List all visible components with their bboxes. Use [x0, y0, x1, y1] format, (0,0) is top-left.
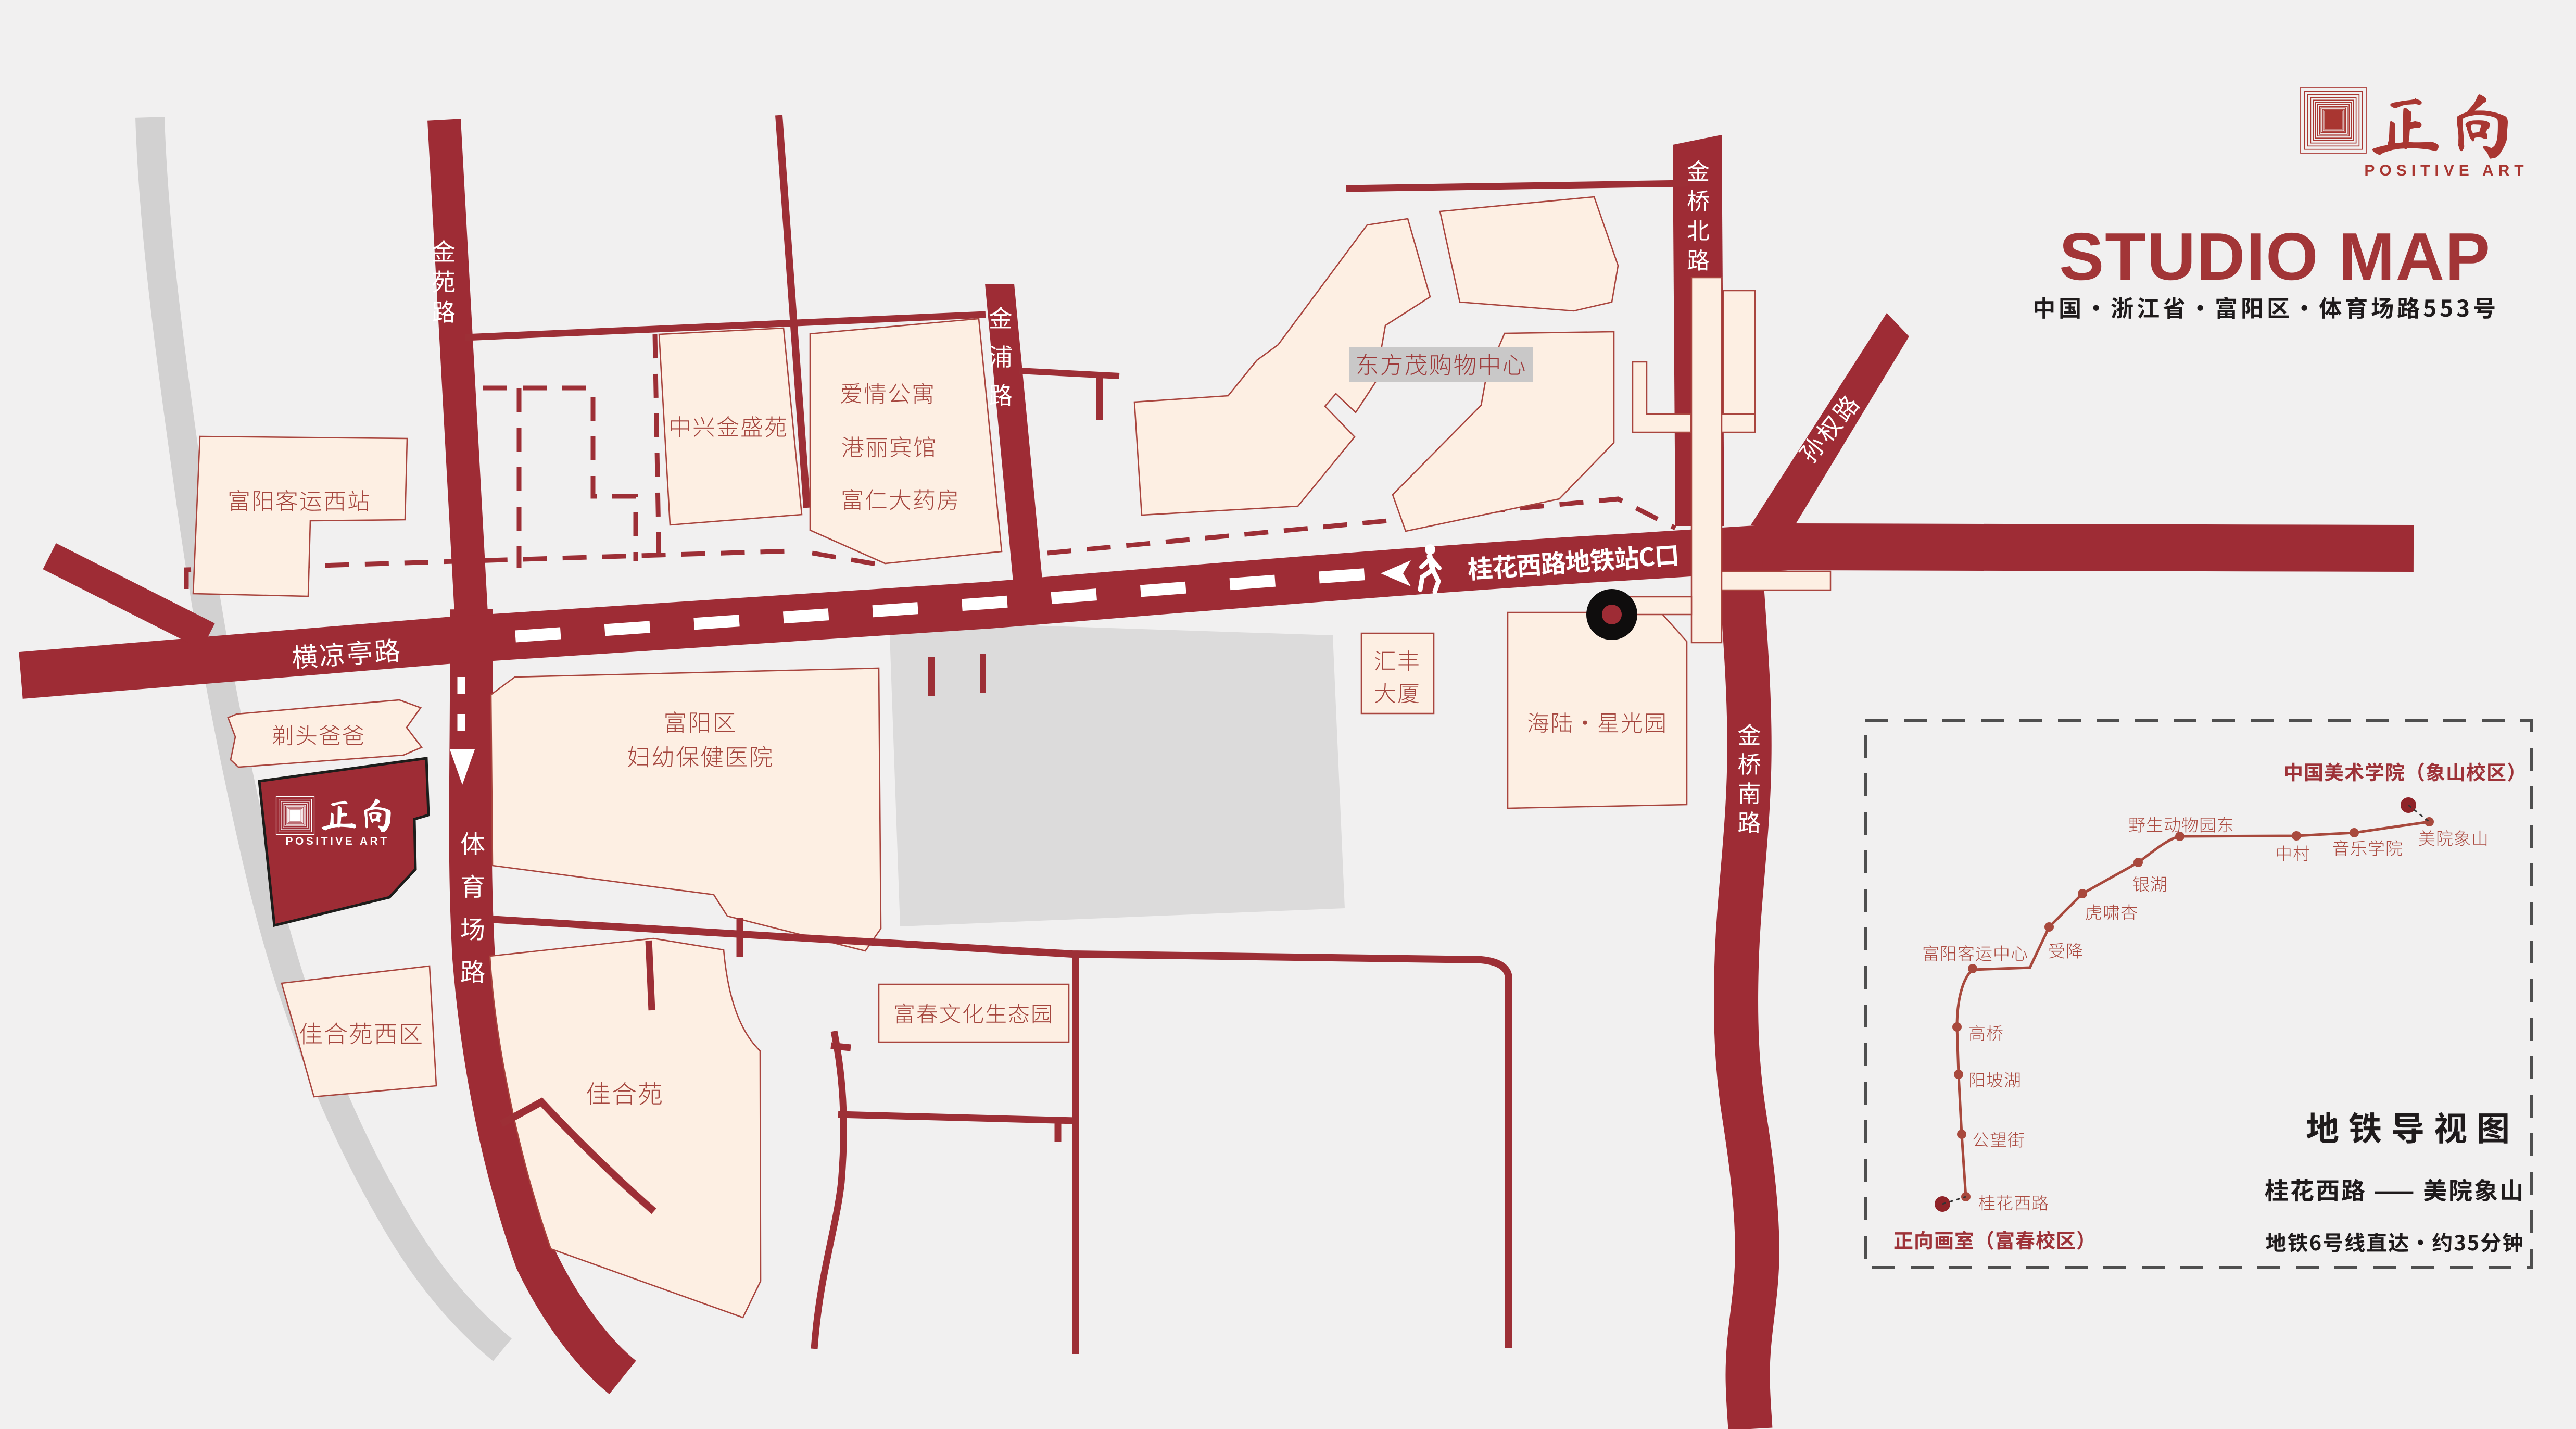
- svg-text:POSITIVE ART: POSITIVE ART: [285, 835, 389, 847]
- svg-text:路: 路: [1737, 804, 1761, 838]
- svg-text:佳合苑西区: 佳合苑西区: [299, 1016, 424, 1050]
- svg-text:公望街: 公望街: [1972, 1126, 2025, 1151]
- svg-text:高桥: 高桥: [1968, 1020, 2004, 1045]
- svg-text:中国美术学院（象山校区）: 中国美术学院（象山校区）: [2283, 757, 2527, 785]
- svg-text:北: 北: [1687, 212, 1710, 246]
- svg-text:妇幼保健医院: 妇幼保健医院: [627, 738, 774, 772]
- svg-text:正向: 正向: [320, 795, 397, 834]
- svg-text:中国·浙江省·富阳区·体育场路553号: 中国·浙江省·富阳区·体育场路553号: [2032, 290, 2499, 323]
- svg-text:中兴金盛苑: 中兴金盛苑: [668, 409, 788, 442]
- svg-text:银湖: 银湖: [2132, 871, 2168, 896]
- svg-text:港丽宾馆: 港丽宾馆: [841, 429, 937, 462]
- svg-text:浦: 浦: [989, 339, 1013, 373]
- svg-text:金: 金: [989, 300, 1013, 334]
- svg-text:金: 金: [1687, 153, 1710, 186]
- svg-text:音乐学院: 音乐学院: [2332, 835, 2403, 860]
- svg-text:POSITIVE ART: POSITIVE ART: [2364, 162, 2528, 179]
- svg-text:路: 路: [460, 952, 485, 988]
- svg-text:野生动物园东: 野生动物园东: [2128, 811, 2234, 836]
- svg-text:中村: 中村: [2275, 840, 2310, 865]
- svg-text:富春文化生态园: 富春文化生态园: [893, 997, 1054, 1029]
- svg-text:场: 场: [460, 909, 485, 946]
- svg-text:阳坡湖: 阳坡湖: [1968, 1067, 2022, 1092]
- svg-text:爱情公寓: 爱情公寓: [840, 375, 936, 409]
- svg-text:佳合苑: 佳合苑: [586, 1074, 664, 1110]
- svg-text:正向: 正向: [2368, 88, 2522, 162]
- svg-text:路: 路: [432, 294, 456, 328]
- svg-text:受降: 受降: [2048, 937, 2083, 962]
- svg-text:STUDIO MAP: STUDIO MAP: [2059, 219, 2491, 294]
- svg-text:富仁大药房: 富仁大药房: [841, 482, 961, 515]
- svg-text:桥: 桥: [1687, 183, 1710, 216]
- svg-text:汇丰: 汇丰: [1374, 644, 1421, 676]
- svg-text:金: 金: [432, 233, 456, 268]
- svg-text:苑: 苑: [432, 264, 456, 298]
- svg-text:路: 路: [1687, 242, 1710, 275]
- svg-text:体: 体: [460, 824, 485, 860]
- svg-text:桂花西路 —— 美院象山: 桂花西路 —— 美院象山: [2265, 1172, 2525, 1207]
- svg-text:路: 路: [989, 377, 1013, 411]
- svg-text:剃头爸爸: 剃头爸爸: [272, 718, 365, 750]
- svg-text:地铁导视图: 地铁导视图: [2306, 1102, 2519, 1150]
- svg-text:育: 育: [460, 867, 485, 903]
- svg-text:富阳区: 富阳区: [663, 704, 737, 738]
- svg-text:海陆·星光园: 海陆·星光园: [1527, 706, 1668, 738]
- svg-text:东方茂购物中心: 东方茂购物中心: [1355, 346, 1526, 380]
- svg-text:横凉亭路: 横凉亭路: [290, 630, 403, 675]
- svg-text:富阳客运中心: 富阳客运中心: [1922, 940, 2028, 965]
- svg-text:正向画室（富春校区）: 正向画室（富春校区）: [1893, 1225, 2097, 1253]
- svg-text:桂花西路: 桂花西路: [1978, 1189, 2049, 1214]
- svg-text:大厦: 大厦: [1374, 676, 1421, 708]
- svg-text:地铁6号线直达·约35分钟: 地铁6号线直达·约35分钟: [2266, 1226, 2524, 1257]
- svg-text:虎啸杏: 虎啸杏: [2085, 899, 2138, 924]
- svg-text:美院象山: 美院象山: [2418, 825, 2489, 850]
- svg-text:富阳客运西站: 富阳客运西站: [228, 483, 371, 516]
